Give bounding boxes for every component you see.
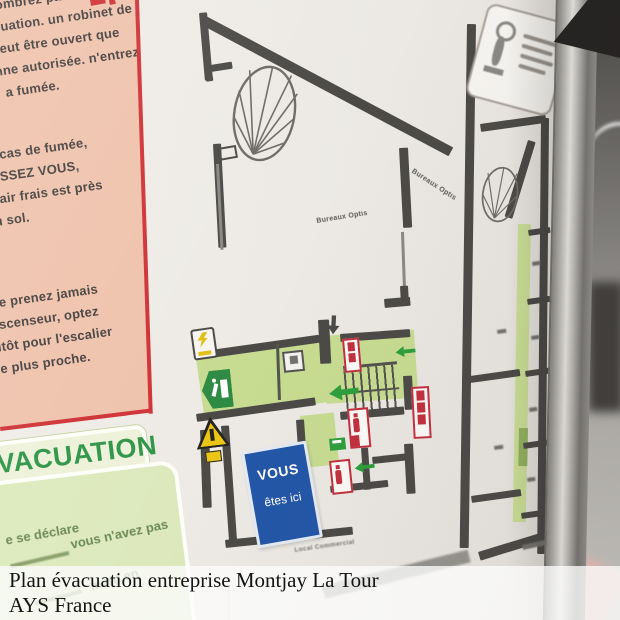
wall-shadow bbox=[588, 282, 620, 412]
wall-segment bbox=[384, 297, 411, 308]
wall-segment bbox=[404, 444, 416, 494]
fire-alarm-icon bbox=[342, 338, 362, 373]
bolt-glyph bbox=[196, 332, 209, 348]
exit-man-glyph bbox=[212, 378, 216, 382]
you-are-here-line1: VOUS bbox=[247, 459, 309, 485]
evacuation-arrow-icon bbox=[354, 460, 375, 474]
instructions-block: n cas de fumée, AISSEZ VOUS, air frais e… bbox=[0, 130, 107, 233]
room-sign bbox=[282, 350, 305, 373]
wall-segment bbox=[372, 453, 407, 464]
badge-emblem-icon bbox=[490, 35, 506, 66]
panel-fragment: e se déclare bbox=[4, 520, 80, 548]
evacuation-arrow-icon bbox=[395, 345, 416, 358]
exit-direction-icon bbox=[329, 437, 346, 451]
entry-arrow-icon bbox=[327, 315, 340, 335]
panel-fragment: vous n'avez pas bbox=[69, 516, 169, 551]
caption-title: Plan évacuation entreprise Montjay La To… bbox=[9, 568, 620, 593]
alarm-point-icon bbox=[350, 435, 360, 447]
exit-door-glyph bbox=[220, 379, 229, 398]
bolt-bar bbox=[198, 350, 211, 356]
exit-man-glyph bbox=[212, 383, 219, 397]
electrical-cutoff-icon bbox=[190, 327, 218, 361]
instructions-block: combrez pas les uation. un robinet de pe… bbox=[0, 0, 144, 105]
you-are-here-line2: êtes ici bbox=[252, 487, 314, 511]
glass-partition bbox=[401, 232, 406, 286]
room-label: Local Commercial bbox=[294, 539, 355, 554]
instructions-block: Ne prenez jamais l'ascenseur, optez plut… bbox=[0, 277, 117, 381]
instructions-panel: combrez pas les uation. un robinet de pe… bbox=[0, 0, 160, 440]
wall-segment bbox=[460, 24, 476, 548]
photo-evacuation-plan: combrez pas les uation. un robinet de pe… bbox=[0, 0, 620, 620]
fire-extinguisher-icon bbox=[329, 459, 353, 495]
fire-hose-reel-icon bbox=[411, 386, 432, 439]
hazard-tag bbox=[205, 450, 222, 463]
caption-subtitle: AYS France bbox=[9, 593, 620, 618]
caption-bar: Plan évacuation entreprise Montjay La To… bbox=[0, 566, 620, 620]
badge-emblem-icon bbox=[483, 65, 504, 76]
room-label: Bureaux Optis bbox=[410, 168, 457, 202]
wall-segment bbox=[399, 148, 412, 228]
room-label: Bureaux Optis bbox=[316, 210, 368, 225]
spiral-staircase-icon bbox=[219, 56, 311, 175]
label-smudge bbox=[494, 445, 503, 450]
